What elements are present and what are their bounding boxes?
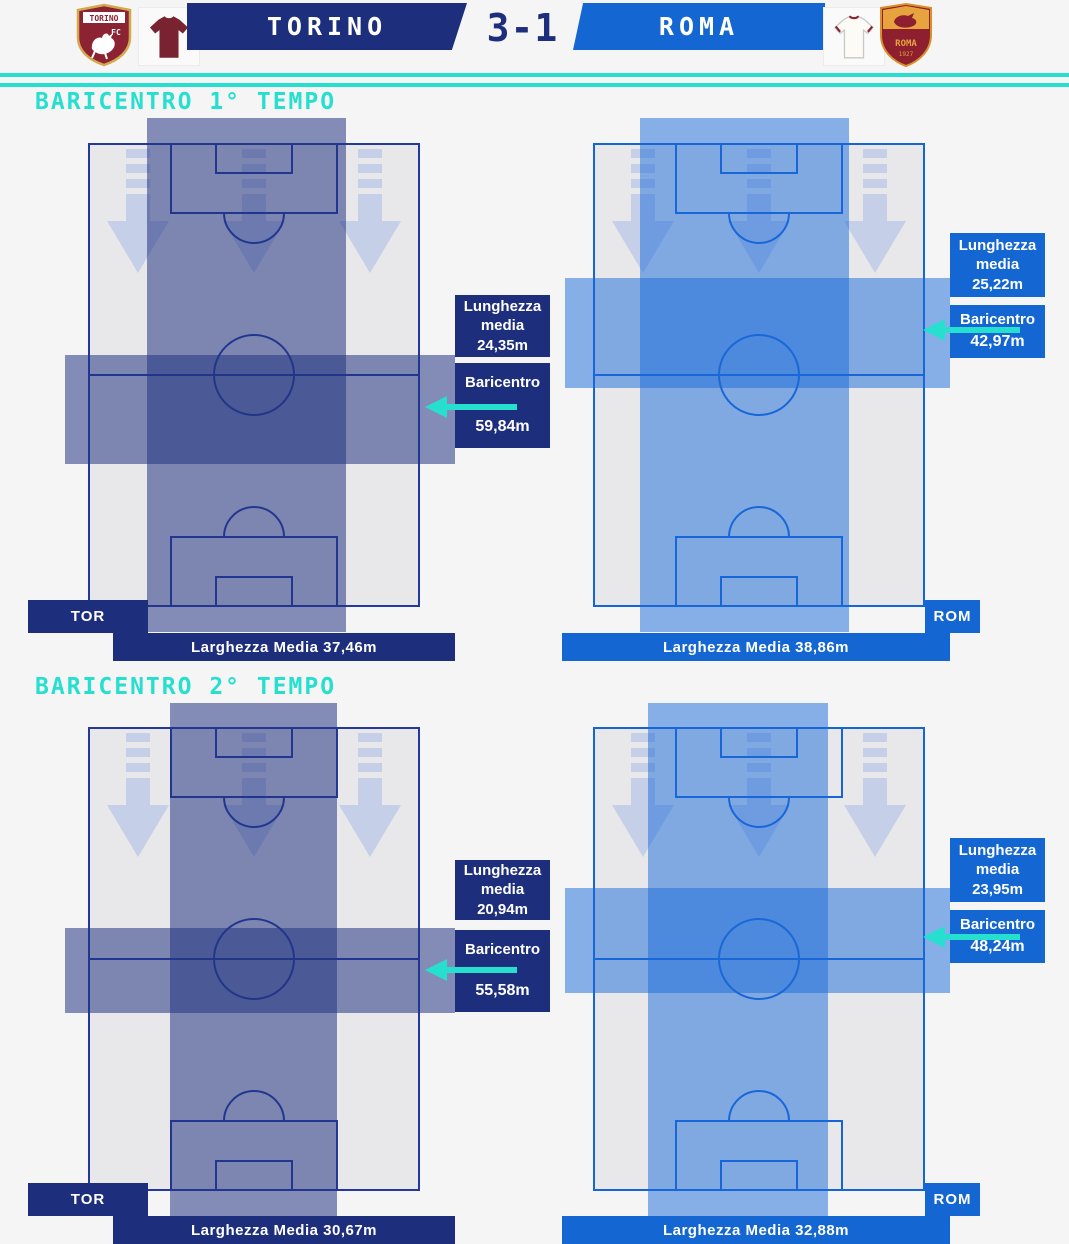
- lunghezza-box-tor-2: Lunghezza media 20,94m: [455, 860, 550, 920]
- torino-crest-icon: TORINO FC: [75, 3, 133, 67]
- baricentro-arrow-shaft-rom-1: [945, 327, 1020, 333]
- baricentro-arrow-head-tor-1: [425, 396, 447, 418]
- baricentro-arrow-head-rom-1: [923, 319, 945, 341]
- team-abbr-rom-1: ROM: [925, 600, 980, 633]
- baricentro-arrow-head-rom-2: [923, 926, 945, 948]
- lunghezza-box-rom-1: Lunghezza media 25,22m: [950, 233, 1045, 297]
- roma-length-band-2: [565, 888, 950, 993]
- baricentro-arrow-head-tor-2: [425, 959, 447, 981]
- larghezza-bar-rom-2: Larghezza Media 32,88m: [562, 1216, 950, 1244]
- larghezza-bar-rom-1: Larghezza Media 38,86m: [562, 633, 950, 661]
- match-baricentro-graphic: TORINO FC TORINO 3-1 ROMA ROMA 1927: [0, 0, 1069, 1244]
- team-abbr-tor-2: TOR: [28, 1183, 148, 1216]
- lunghezza-value: media 25,22m: [950, 255, 1045, 294]
- match-score: 3-1: [470, 6, 575, 50]
- baricentro-value: 42,97m: [970, 332, 1024, 353]
- svg-text:TORINO: TORINO: [90, 14, 119, 23]
- lunghezza-label: Lunghezza: [959, 841, 1037, 861]
- lunghezza-label: Lunghezza: [959, 236, 1037, 256]
- lunghezza-value: media 24,35m: [455, 316, 550, 355]
- home-team-banner: TORINO: [187, 3, 467, 50]
- lunghezza-label: Lunghezza: [464, 297, 542, 317]
- baricentro-value: 59,84m: [475, 417, 529, 438]
- baricentro-value: 48,24m: [970, 937, 1024, 958]
- away-team-banner: ROMA: [573, 3, 825, 50]
- baricentro-value: 55,58m: [475, 981, 529, 1002]
- baricentro-arrow-shaft-tor-2: [447, 967, 517, 973]
- larghezza-bar-tor-1: Larghezza Media 37,46m: [113, 633, 455, 661]
- section-title-first-half: BARICENTRO 1° TEMPO: [35, 89, 336, 115]
- torino-length-band-1: [65, 355, 455, 464]
- roma-length-band-1: [565, 278, 950, 388]
- roma-crest-year: 1927: [899, 51, 914, 58]
- roma-crest-icon: ROMA 1927: [878, 2, 934, 68]
- team-abbr-tor-1: TOR: [28, 600, 148, 633]
- baricentro-label: Baricentro: [960, 915, 1035, 935]
- lunghezza-box-tor-1: Lunghezza media 24,35m: [455, 295, 550, 357]
- header-divider: [0, 73, 1069, 87]
- section-title-second-half: BARICENTRO 2° TEMPO: [35, 674, 336, 700]
- baricentro-label: Baricentro: [465, 373, 540, 393]
- roma-shirt-icon: [823, 7, 885, 66]
- baricentro-arrow-shaft-rom-2: [945, 934, 1020, 940]
- larghezza-bar-tor-2: Larghezza Media 30,67m: [113, 1216, 455, 1244]
- team-abbr-rom-2: ROM: [925, 1183, 980, 1216]
- baricentro-label: Baricentro: [465, 940, 540, 960]
- lunghezza-value: media 23,95m: [950, 860, 1045, 899]
- lunghezza-value: media 20,94m: [455, 880, 550, 919]
- away-team-name: ROMA: [659, 12, 739, 41]
- lunghezza-box-rom-2: Lunghezza media 23,95m: [950, 838, 1045, 902]
- home-team-name: TORINO: [267, 12, 387, 41]
- svg-text:FC: FC: [111, 28, 121, 37]
- baricentro-arrow-shaft-tor-1: [447, 404, 517, 410]
- torino-length-band-2: [65, 928, 455, 1013]
- lunghezza-label: Lunghezza: [464, 861, 542, 881]
- roma-crest-text: ROMA: [895, 39, 917, 49]
